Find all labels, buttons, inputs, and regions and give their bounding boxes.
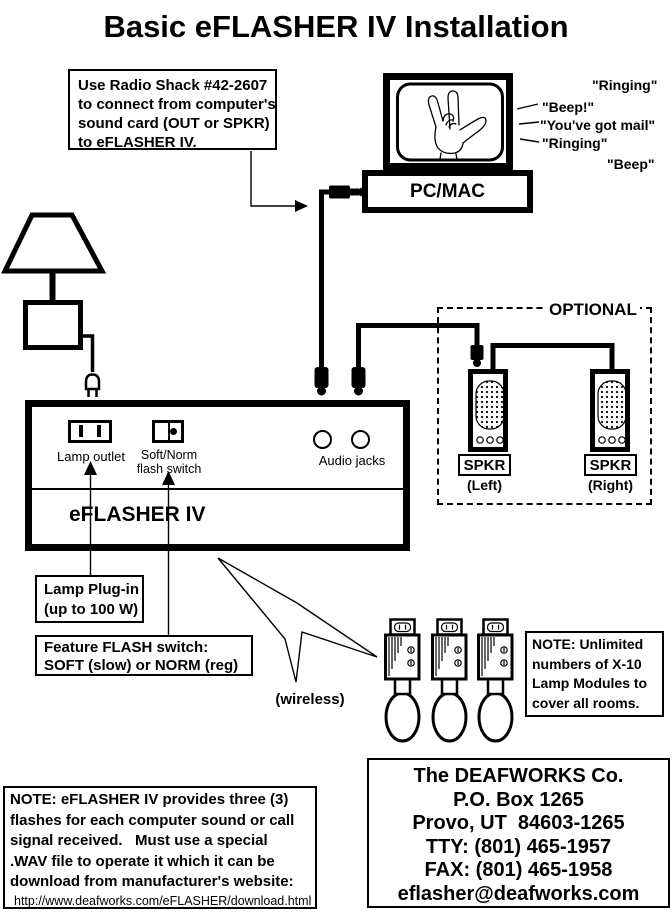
soft-norm-switch-icon xyxy=(152,420,184,443)
note-line: Feature FLASH switch: xyxy=(44,639,251,657)
sound-label-beep-1: "Beep!" xyxy=(542,99,594,115)
note-line: flashes for each computer sound or call xyxy=(10,811,315,832)
computer-monitor xyxy=(387,77,510,167)
x10-lamp-module-2 xyxy=(433,620,467,742)
speaker-right-label-box: SPKR xyxy=(584,454,637,476)
note-line: (up to 100 W) xyxy=(44,600,142,620)
speaker-left-position: (Left) xyxy=(452,477,517,493)
x10-modules-note: NOTE: Unlimited numbers of X-10 Lamp Mod… xyxy=(525,631,664,717)
flash-switch-label-line: Soft/Norm xyxy=(134,448,204,462)
ily-hand-icon xyxy=(428,91,486,159)
optional-label: OPTIONAL xyxy=(546,300,640,320)
eflasher-name: eFLASHER IV xyxy=(69,503,206,527)
contact-info-box: The DEAFWORKS Co. P.O. Box 1265 Provo, U… xyxy=(367,758,670,908)
download-url: http://www.deafworks.com/eFLASHER/downlo… xyxy=(10,893,315,909)
note-line: sound card (OUT or SPKR) xyxy=(78,114,275,133)
note-line: NOTE: eFLASHER IV provides three (3) xyxy=(10,790,315,811)
radio-shack-note: Use Radio Shack #42-2607 to connect from… xyxy=(68,69,277,150)
wav-file-note: NOTE: eFLASHER IV provides three (3) fla… xyxy=(3,786,317,909)
note-line: SOFT (slow) or NORM (reg) xyxy=(44,657,251,675)
lamp-outlet-label: Lamp outlet xyxy=(56,449,126,464)
pc-mac-label: PC/MAC xyxy=(362,170,533,213)
company-name: The DEAFWORKS Co. xyxy=(369,765,668,789)
speaker-right-position: (Right) xyxy=(578,477,643,493)
audio-jack-right xyxy=(351,430,370,449)
tty-number: TTY: (801) 465-1957 xyxy=(369,836,668,860)
page-title: Basic eFLASHER IV Installation xyxy=(0,9,672,45)
sound-label-beep-2: "Beep" xyxy=(607,156,655,172)
sound-label-ringing-1: "Ringing" xyxy=(592,77,657,93)
note-line: download from manufacturer's website: xyxy=(10,872,315,893)
speaker-left-label-box: SPKR xyxy=(458,454,511,476)
pc-audio-cable xyxy=(315,186,368,396)
sound-label-youve-got-mail: "You've got mail" xyxy=(540,117,655,133)
po-box: P.O. Box 1265 xyxy=(369,789,668,813)
radio-note-arrow xyxy=(251,151,308,212)
flash-switch-label: Soft/Norm flash switch xyxy=(134,448,204,476)
outlet-slot xyxy=(79,425,83,437)
note-line: Lamp Modules to xyxy=(532,674,662,694)
lamp-outlet-icon xyxy=(68,420,112,443)
note-line: signal received. Must use a special xyxy=(10,831,315,852)
eflasher-device: Lamp outlet Soft/Norm flash switch Audio… xyxy=(25,400,410,551)
installation-diagram: Basic eFLASHER IV Installation Use Radio… xyxy=(0,0,672,912)
outlet-slot xyxy=(97,425,101,437)
panel-divider xyxy=(32,488,403,490)
flash-switch-label-line: flash switch xyxy=(134,462,204,476)
note-line: to eFLASHER IV. xyxy=(78,133,275,152)
note-line: numbers of X-10 xyxy=(532,655,662,675)
x10-lamp-module-3 xyxy=(479,620,513,742)
email-address: eflasher@deafworks.com xyxy=(369,883,668,907)
wireless-label: (wireless) xyxy=(250,691,370,708)
lamp-plugin-note: Lamp Plug-in (up to 100 W) xyxy=(35,575,144,623)
table-lamp xyxy=(5,215,102,397)
note-line: .WAV file to operate it which it can be xyxy=(10,852,315,873)
sound-leader-lines xyxy=(517,104,539,142)
city-state-zip: Provo, UT 84603-1265 xyxy=(369,812,668,836)
switch-dot xyxy=(170,428,177,435)
note-line: to connect from computer's xyxy=(78,95,275,114)
sound-label-ringing-2: "Ringing" xyxy=(542,135,607,151)
audio-jack-left xyxy=(313,430,332,449)
note-line: cover all rooms. xyxy=(532,694,662,714)
fax-number: FAX: (801) 465-1958 xyxy=(369,859,668,883)
note-line: Use Radio Shack #42-2607 xyxy=(78,76,275,95)
note-line: Lamp Plug-in xyxy=(44,580,142,600)
x10-lamp-module-1 xyxy=(386,620,420,742)
audio-jacks-label: Audio jacks xyxy=(302,453,402,468)
note-line: NOTE: Unlimited xyxy=(532,635,662,655)
flash-feature-note: Feature FLASH switch: SOFT (slow) or NOR… xyxy=(35,635,253,676)
